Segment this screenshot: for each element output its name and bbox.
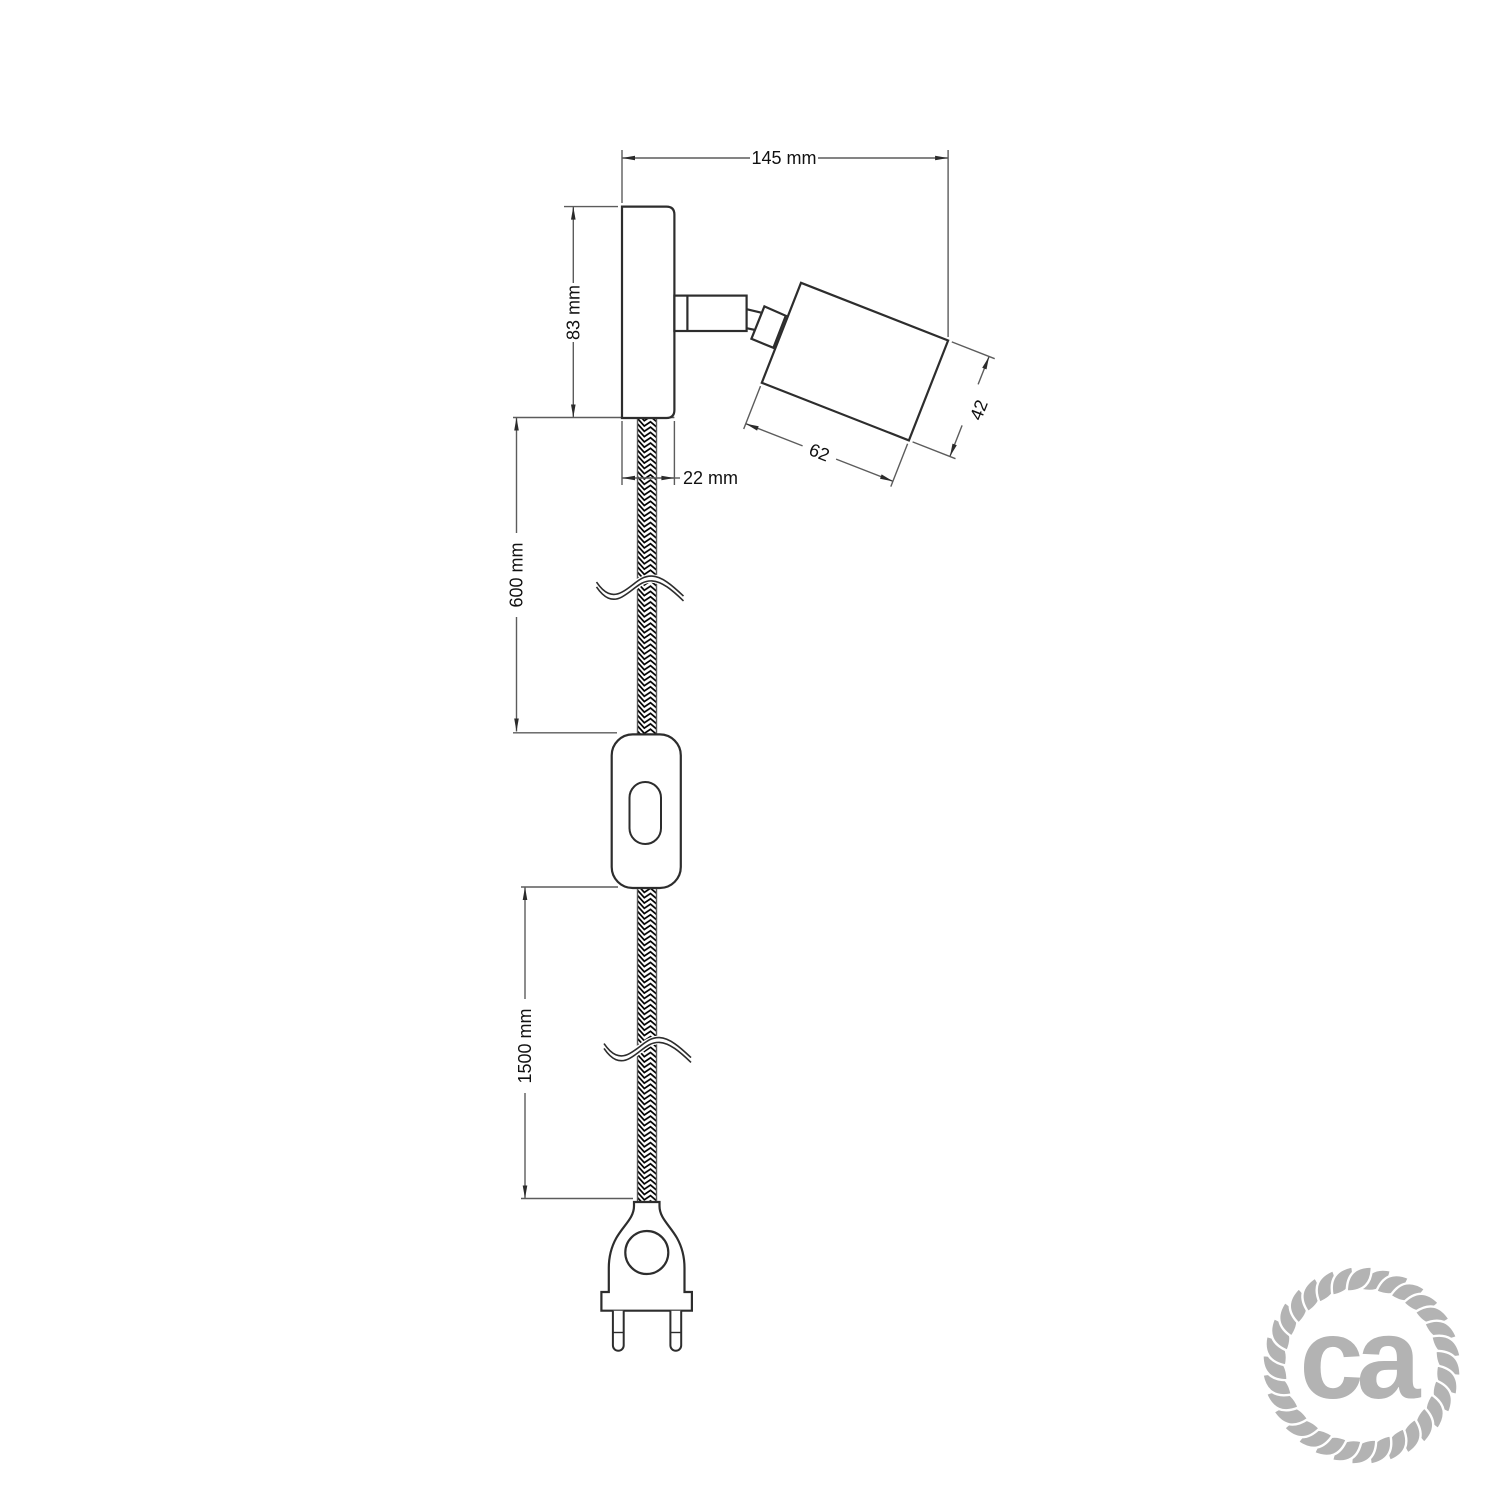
svg-text:1500 mm: 1500 mm [515, 1008, 535, 1083]
svg-text:600 mm: 600 mm [507, 542, 527, 607]
svg-text:62: 62 [806, 440, 832, 466]
svg-text:ca: ca [1300, 1295, 1422, 1423]
svg-text:22 mm: 22 mm [683, 468, 738, 488]
svg-text:42: 42 [966, 397, 992, 423]
svg-text:145 mm: 145 mm [751, 148, 816, 168]
svg-text:83 mm: 83 mm [563, 285, 583, 340]
